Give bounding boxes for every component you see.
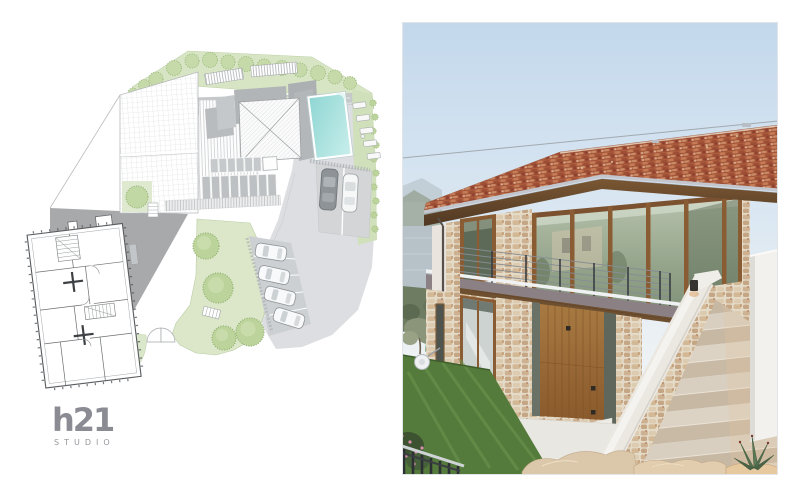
presentation-board: h21 STUDIO (0, 0, 800, 500)
site-plan-drawing (20, 5, 385, 395)
car-dark (319, 168, 338, 210)
roof-access (263, 157, 278, 171)
roof-vent (742, 123, 751, 127)
courtyard-tree (126, 186, 148, 208)
villa-photo (402, 22, 778, 475)
gridded-roof (120, 72, 198, 213)
white-parapet-wall (750, 250, 778, 441)
studio-logo: h21 STUDIO (52, 404, 115, 447)
parking-upper (310, 161, 372, 238)
roof-vent (652, 140, 659, 143)
site-boundary (50, 95, 120, 208)
entrance-gate (147, 328, 175, 342)
site-plan-panel (20, 5, 385, 395)
hip-roof (239, 98, 301, 162)
logo-wordmark: h21 (52, 404, 115, 436)
wood-entry-door (540, 304, 604, 420)
villa-photo-panel (402, 22, 778, 475)
logo-subtitle: STUDIO (54, 438, 115, 447)
car-white (342, 174, 359, 213)
wall-lamp (689, 280, 699, 297)
